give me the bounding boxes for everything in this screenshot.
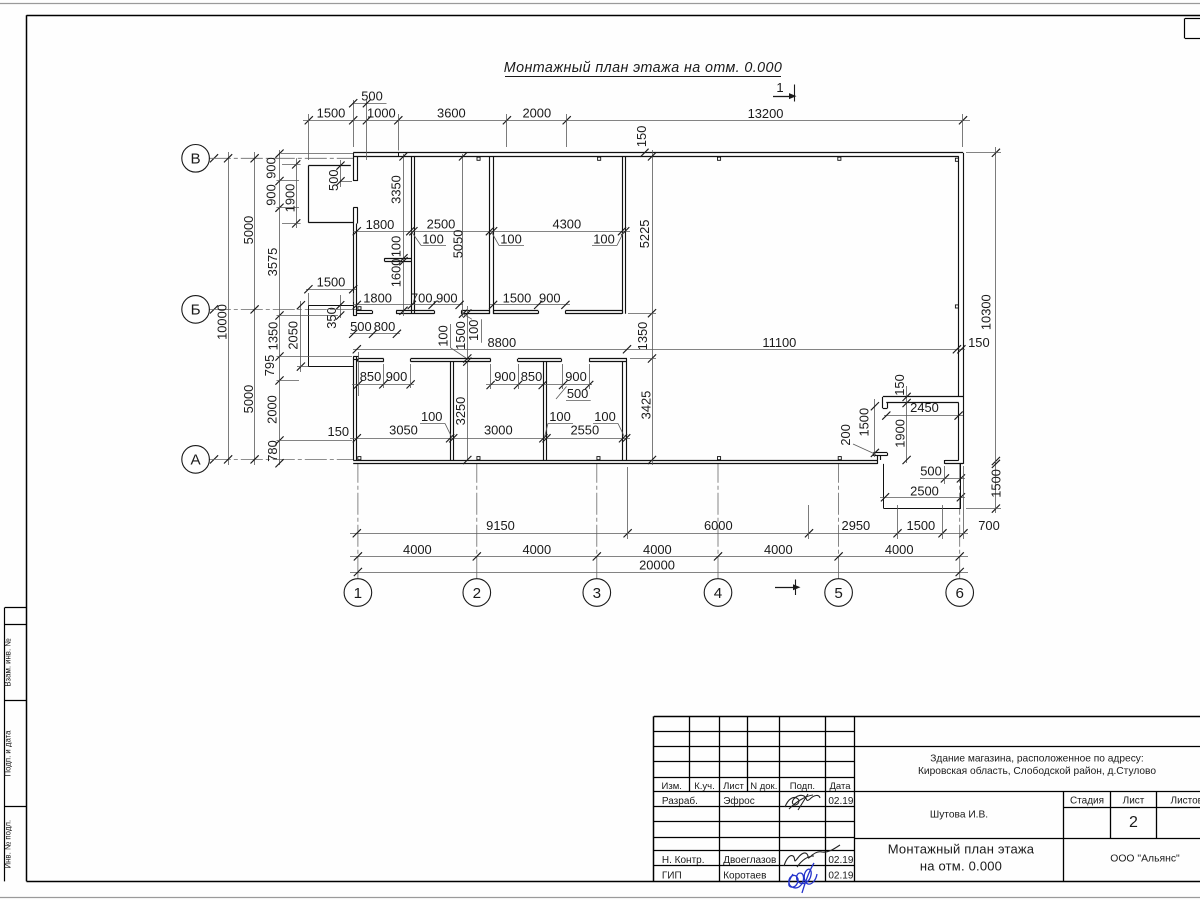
svg-text:Разраб.: Разраб. <box>662 795 698 807</box>
svg-text:1500: 1500 <box>503 290 532 305</box>
svg-text:500: 500 <box>567 386 589 401</box>
svg-text:20000: 20000 <box>639 558 675 573</box>
svg-text:500: 500 <box>920 464 942 479</box>
svg-text:ООО "Альянс": ООО "Альянс" <box>1110 854 1180 865</box>
svg-text:2050: 2050 <box>285 321 300 350</box>
svg-text:Шутова И.В.: Шутова И.В. <box>930 810 988 821</box>
svg-text:А: А <box>191 452 202 469</box>
svg-text:К.уч.: К.уч. <box>694 781 715 792</box>
svg-text:100: 100 <box>593 231 615 246</box>
svg-text:Инв. № подл.: Инв. № подл. <box>4 820 13 869</box>
svg-text:Здание магазина, расположенное: Здание магазина, расположенное по адресу… <box>930 754 1143 765</box>
svg-text:500: 500 <box>350 319 372 334</box>
svg-text:6: 6 <box>955 585 963 602</box>
svg-text:1500: 1500 <box>907 518 936 533</box>
svg-text:1350: 1350 <box>266 322 281 351</box>
svg-text:4000: 4000 <box>885 542 914 557</box>
svg-text:1500: 1500 <box>317 105 346 120</box>
svg-text:4300: 4300 <box>552 217 581 232</box>
svg-text:4000: 4000 <box>403 542 432 557</box>
svg-text:150: 150 <box>968 335 990 350</box>
svg-text:02.19: 02.19 <box>828 871 853 882</box>
svg-text:500: 500 <box>326 169 341 191</box>
svg-text:100: 100 <box>594 409 616 424</box>
svg-text:Подп.: Подп. <box>790 781 815 792</box>
svg-text:Взам. инв. №: Взам. инв. № <box>4 638 13 686</box>
svg-text:В: В <box>191 151 201 168</box>
svg-text:Кировская область, Слободской: Кировская область, Слободской район, д.С… <box>918 765 1156 777</box>
svg-text:Лист: Лист <box>1123 796 1145 807</box>
svg-text:4000: 4000 <box>764 542 793 557</box>
svg-text:900: 900 <box>386 369 408 384</box>
svg-text:3: 3 <box>593 585 601 602</box>
svg-text:3600: 3600 <box>437 105 466 120</box>
svg-text:3350: 3350 <box>388 175 403 204</box>
svg-text:700,900: 700,900 <box>411 290 458 305</box>
svg-text:2500: 2500 <box>427 217 456 232</box>
svg-text:1800: 1800 <box>363 290 392 305</box>
svg-text:6000: 6000 <box>704 518 733 533</box>
svg-text:1500: 1500 <box>857 408 872 437</box>
svg-text:1500: 1500 <box>989 469 1004 498</box>
svg-text:5050: 5050 <box>450 230 465 259</box>
svg-text:100: 100 <box>422 231 444 246</box>
svg-text:Двоеглазов: Двоеглазов <box>723 855 776 866</box>
svg-text:Эфрос: Эфрос <box>723 795 755 807</box>
svg-text:1800: 1800 <box>366 217 395 232</box>
svg-text:900: 900 <box>565 369 587 384</box>
svg-text:ГИП: ГИП <box>662 871 682 882</box>
svg-text:1: 1 <box>776 80 783 95</box>
svg-text:100: 100 <box>549 409 571 424</box>
svg-text:1500: 1500 <box>317 275 346 290</box>
svg-text:1350: 1350 <box>635 322 650 351</box>
svg-text:500: 500 <box>361 88 383 103</box>
svg-text:Изм.: Изм. <box>662 781 682 792</box>
svg-text:1900: 1900 <box>282 184 297 213</box>
svg-text:150: 150 <box>892 374 907 396</box>
svg-text:8800: 8800 <box>487 335 516 350</box>
svg-text:10000: 10000 <box>214 304 229 340</box>
svg-text:900: 900 <box>264 184 279 206</box>
svg-text:4000: 4000 <box>522 542 551 557</box>
svg-text:13200: 13200 <box>748 106 784 121</box>
svg-text:200: 200 <box>838 424 853 446</box>
svg-text:Лист: Лист <box>723 781 744 792</box>
svg-text:3050: 3050 <box>389 422 418 437</box>
svg-text:900: 900 <box>494 369 516 384</box>
svg-text:3250: 3250 <box>453 397 468 426</box>
svg-text:100: 100 <box>388 236 403 258</box>
svg-text:2550: 2550 <box>570 422 599 437</box>
svg-text:Подп. и дата: Подп. и дата <box>4 730 13 777</box>
svg-text:3000: 3000 <box>484 422 513 437</box>
svg-text:на отм. 0.000: на отм. 0.000 <box>920 859 1002 874</box>
svg-text:2950: 2950 <box>842 518 871 533</box>
svg-text:100: 100 <box>435 325 450 347</box>
svg-text:850: 850 <box>360 369 382 384</box>
svg-text:1000: 1000 <box>367 105 396 120</box>
svg-text:Стадия: Стадия <box>1070 796 1104 807</box>
svg-text:Коротаев: Коротаев <box>723 871 766 882</box>
svg-text:5000: 5000 <box>241 385 256 414</box>
svg-text:2: 2 <box>473 585 481 602</box>
svg-text:1: 1 <box>354 585 362 602</box>
svg-text:Дата: Дата <box>829 781 851 792</box>
svg-text:2000: 2000 <box>522 105 551 120</box>
svg-text:1600: 1600 <box>388 259 403 288</box>
svg-text:100: 100 <box>466 320 481 342</box>
svg-text:5: 5 <box>834 585 842 602</box>
svg-text:1900: 1900 <box>892 419 907 448</box>
svg-text:900: 900 <box>264 157 279 179</box>
svg-text:900: 900 <box>539 290 561 305</box>
svg-text:100: 100 <box>500 231 522 246</box>
svg-text:150: 150 <box>328 424 350 439</box>
svg-text:4: 4 <box>714 585 722 602</box>
svg-text:350: 350 <box>324 307 339 329</box>
svg-text:11100: 11100 <box>762 335 796 350</box>
svg-text:5225: 5225 <box>637 220 652 249</box>
svg-text:02.19: 02.19 <box>828 796 853 807</box>
svg-text:2500: 2500 <box>910 483 939 498</box>
svg-text:2000: 2000 <box>265 395 280 424</box>
svg-text:850: 850 <box>521 369 543 384</box>
svg-text:Б: Б <box>191 302 201 319</box>
svg-text:2450: 2450 <box>910 400 939 415</box>
svg-text:795: 795 <box>262 355 277 377</box>
svg-text:10300: 10300 <box>978 294 993 330</box>
svg-text:02.19: 02.19 <box>828 855 853 866</box>
svg-text:Монтажный план этажа на отм. 0: Монтажный план этажа на отм. 0.000 <box>504 60 782 76</box>
svg-text:700: 700 <box>978 518 1000 533</box>
svg-text:800: 800 <box>374 319 396 334</box>
svg-text:N док.: N док. <box>750 781 777 792</box>
svg-text:100: 100 <box>421 409 443 424</box>
svg-text:Н. Контр.: Н. Контр. <box>662 855 705 866</box>
svg-text:4000: 4000 <box>643 542 672 557</box>
svg-text:780: 780 <box>265 440 280 462</box>
svg-text:2: 2 <box>1129 814 1138 831</box>
svg-text:3425: 3425 <box>639 391 654 420</box>
svg-text:3575: 3575 <box>265 248 280 277</box>
svg-text:9150: 9150 <box>486 518 515 533</box>
svg-text:Монтажный план этажа: Монтажный план этажа <box>888 842 1035 857</box>
svg-text:Листов: Листов <box>1171 796 1200 807</box>
svg-text:150: 150 <box>634 126 649 148</box>
svg-text:5000: 5000 <box>241 216 256 245</box>
